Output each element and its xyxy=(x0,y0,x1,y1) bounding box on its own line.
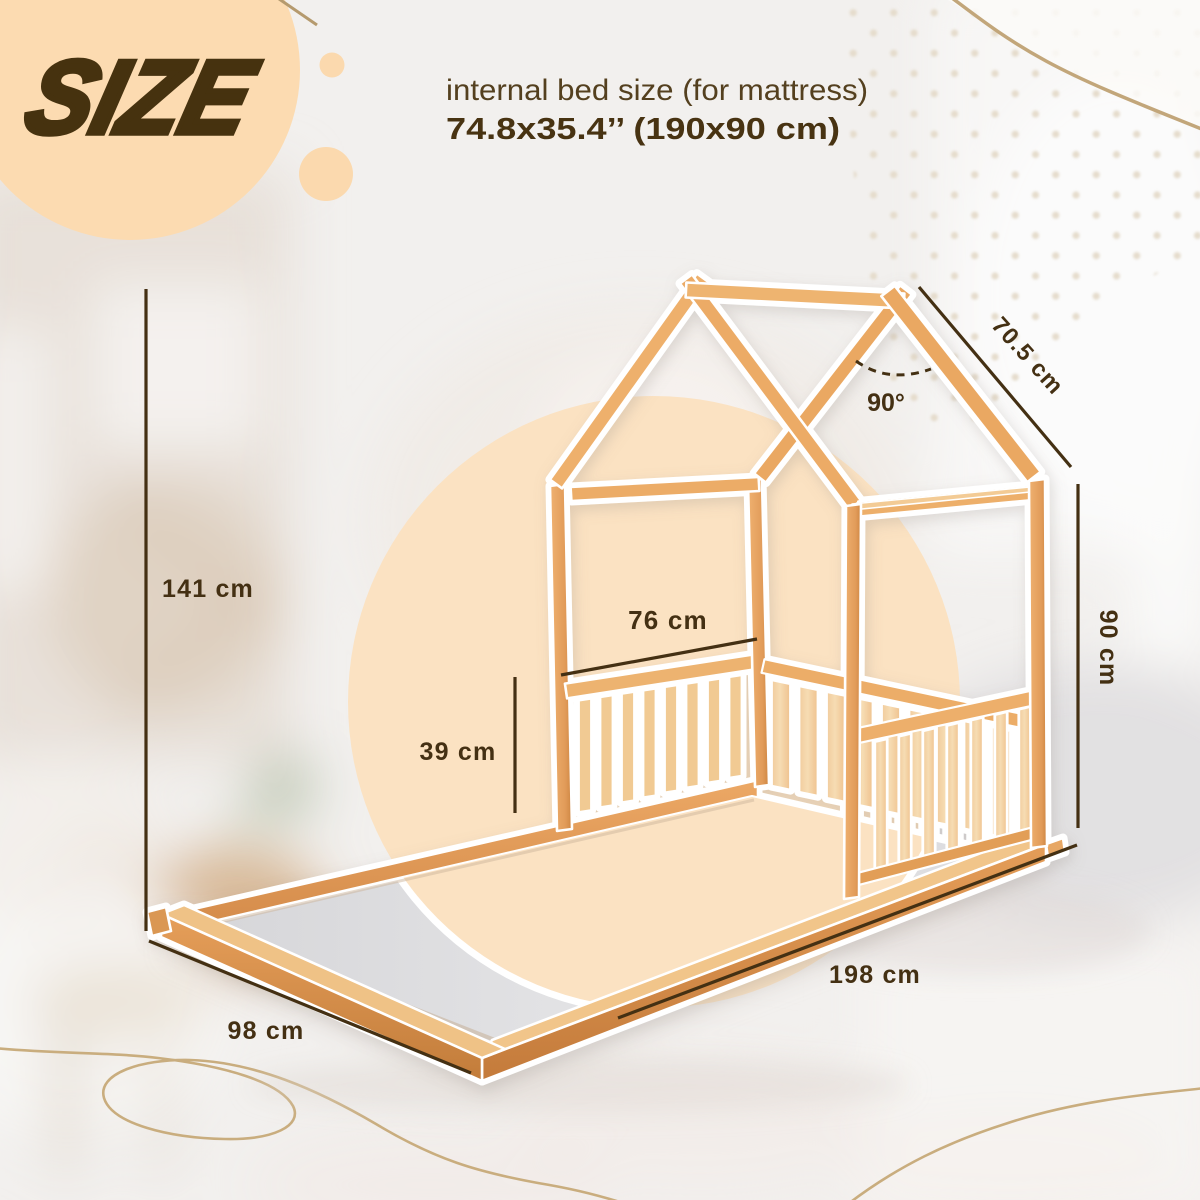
svg-text:76 cm: 76 cm xyxy=(628,605,708,635)
svg-text:74.8x35.4’’ (190x90 cm): 74.8x35.4’’ (190x90 cm) xyxy=(446,111,840,146)
svg-text:internal bed size (for mattres: internal bed size (for mattress) xyxy=(446,74,868,107)
svg-text:39 cm: 39 cm xyxy=(420,738,497,766)
svg-text:SIZE: SIZE xyxy=(15,39,267,155)
svg-text:90 cm: 90 cm xyxy=(1094,610,1122,687)
svg-text:90°: 90° xyxy=(867,389,905,417)
svg-text:198 cm: 198 cm xyxy=(829,961,921,989)
svg-text:141 cm: 141 cm xyxy=(162,575,254,603)
svg-text:98 cm: 98 cm xyxy=(228,1017,305,1045)
